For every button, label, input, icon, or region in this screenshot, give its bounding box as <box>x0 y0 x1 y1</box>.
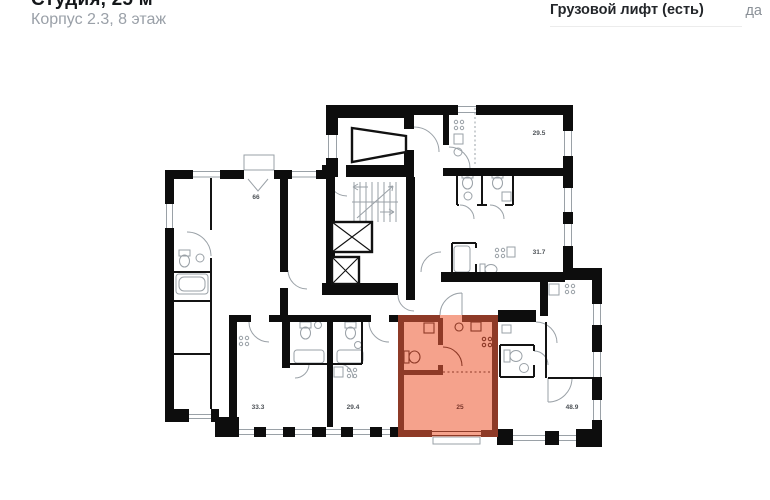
balcony-icon <box>244 155 274 170</box>
trash-chute-icon <box>352 128 406 162</box>
bathroom-fixtures <box>504 350 529 373</box>
highlighted-unit[interactable] <box>398 315 498 437</box>
page: { "header": { "title": "Студия, 25 м²", … <box>0 0 770 500</box>
room-area-label: 29.5 <box>533 130 546 137</box>
room-area-label: 25 <box>456 404 464 411</box>
room-area-label: 66 <box>252 194 260 201</box>
bathroom-fixtures <box>462 172 511 201</box>
balcony-icon <box>433 437 480 444</box>
floorplan: 66 29.5 31.7 33.3 29.4 48.9 25 <box>0 0 770 500</box>
room-area-label: 29.4 <box>347 404 360 411</box>
elevator-icon <box>332 222 372 252</box>
stairs-icon <box>352 182 398 222</box>
highlighted-unit-label: 25 <box>456 404 464 411</box>
room-area-label: 31.7 <box>533 249 546 256</box>
core-features <box>332 128 406 284</box>
elevator-icon <box>332 257 359 284</box>
bay-door-icon <box>248 179 268 191</box>
room-area-label: 33.3 <box>252 404 265 411</box>
room-area-label: 48.9 <box>566 404 579 411</box>
